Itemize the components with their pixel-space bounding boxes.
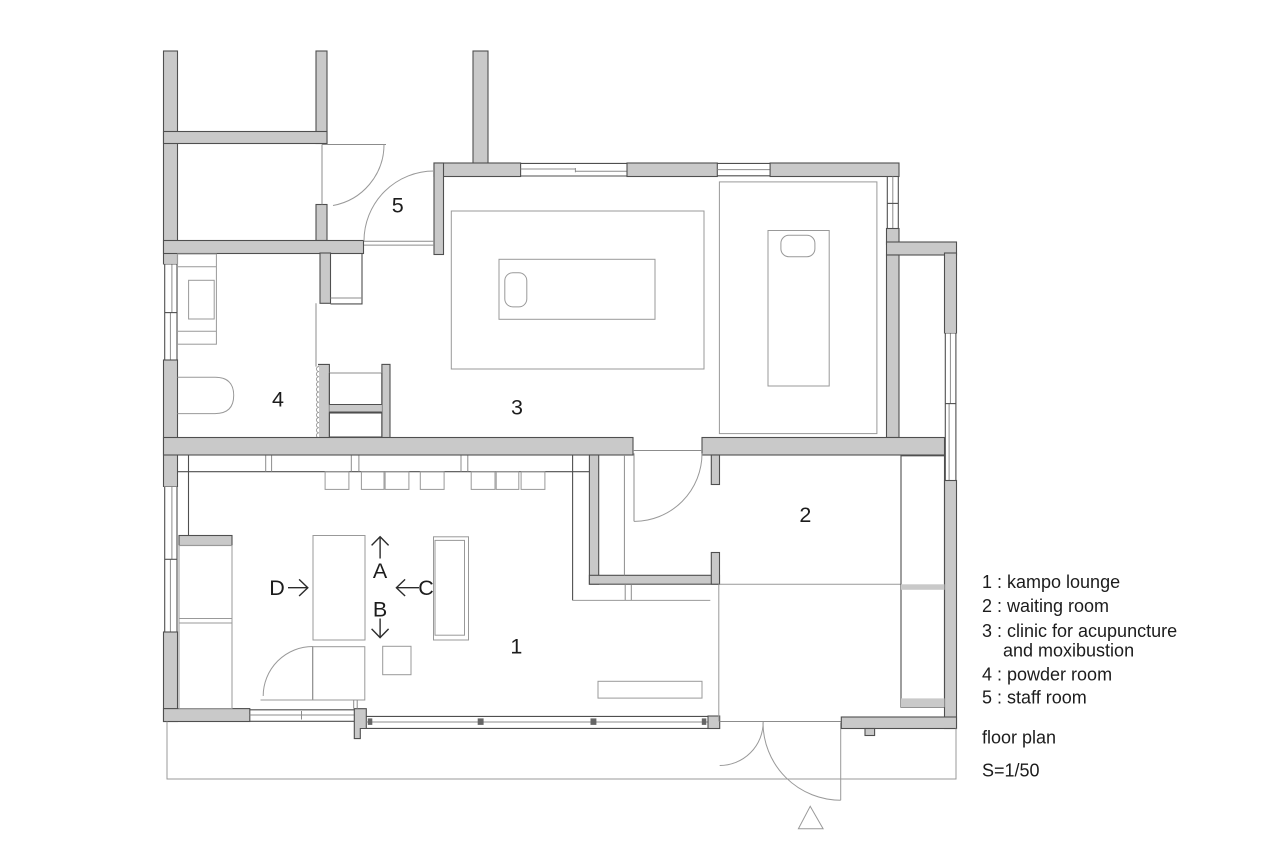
- svg-text:A: A: [373, 559, 388, 583]
- svg-text:5 : staff room: 5 : staff room: [982, 688, 1087, 708]
- svg-text:C: C: [418, 576, 434, 600]
- svg-text:floor plan: floor plan: [982, 728, 1056, 748]
- svg-text:4: 4: [272, 387, 284, 411]
- svg-text:2 : waiting room: 2 : waiting room: [982, 596, 1109, 616]
- svg-text:3: 3: [511, 396, 523, 420]
- svg-text:B: B: [373, 598, 387, 622]
- svg-text:4 : powder room: 4 : powder room: [982, 665, 1112, 685]
- svg-text:5: 5: [392, 194, 404, 218]
- svg-text:1: 1: [510, 634, 522, 658]
- svg-text:2: 2: [799, 503, 811, 527]
- svg-text:D: D: [269, 576, 285, 600]
- svg-text:S=1/50: S=1/50: [982, 761, 1040, 781]
- svg-text:3 : clinic for acupuncture: 3 : clinic for acupuncture: [982, 621, 1177, 641]
- svg-text:1 : kampo lounge: 1 : kampo lounge: [982, 572, 1120, 592]
- svg-text:and moxibustion: and moxibustion: [1003, 641, 1134, 661]
